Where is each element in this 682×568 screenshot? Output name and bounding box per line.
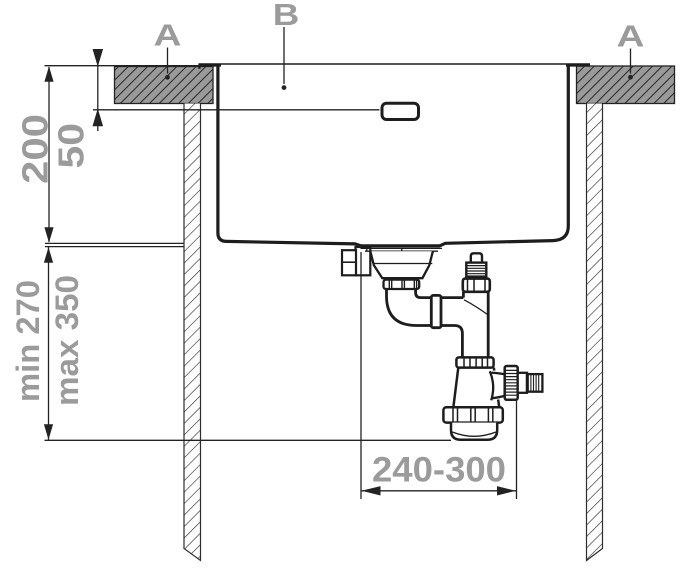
svg-text:A: A [154, 18, 182, 53]
svg-text:min 270: min 270 [10, 280, 46, 402]
svg-text:max 350: max 350 [49, 275, 85, 406]
svg-text:B: B [273, 0, 300, 32]
svg-text:50: 50 [51, 123, 92, 169]
svg-text:240-300: 240-300 [372, 450, 506, 490]
svg-text:200: 200 [14, 114, 55, 184]
svg-text:A: A [617, 19, 645, 54]
